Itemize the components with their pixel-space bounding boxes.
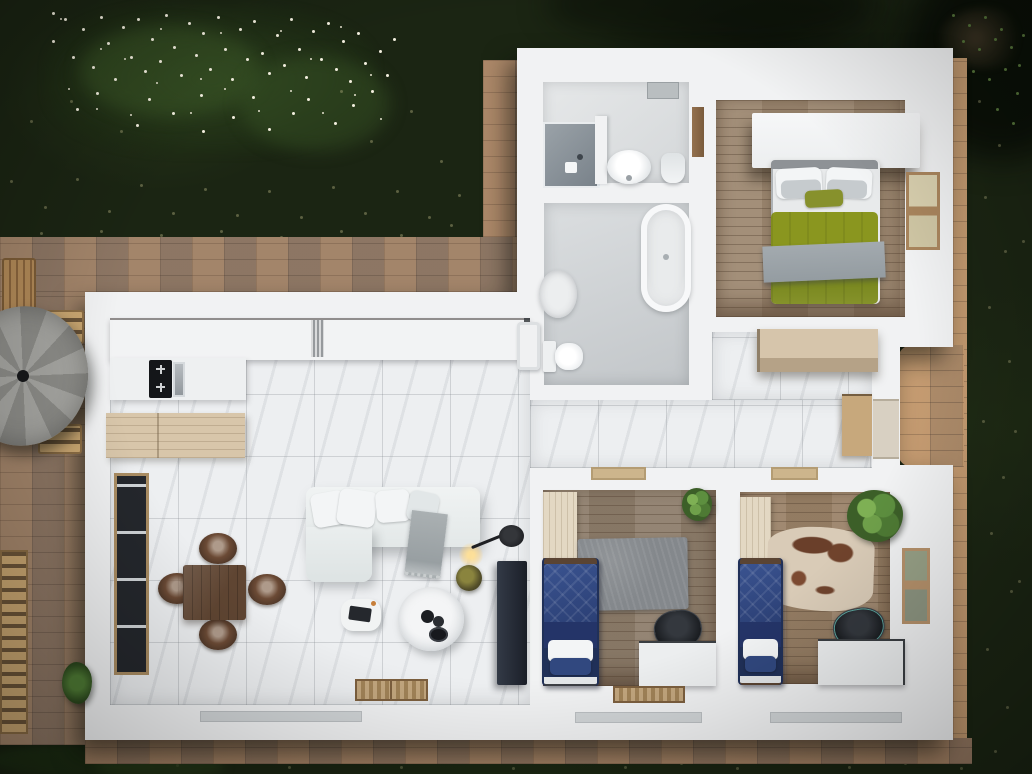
- bedroom1-desk: [639, 641, 716, 686]
- bedroom2-wall-window: [902, 548, 930, 624]
- shower-stall: [543, 122, 600, 188]
- cooktop: [149, 360, 172, 398]
- sofa-throw-blanket: [404, 510, 448, 579]
- parasol-hub: [16, 369, 30, 383]
- olive-accent-pillow: [805, 189, 844, 208]
- tablet: [348, 606, 372, 623]
- oval-washbasin: [539, 270, 577, 318]
- round-washbasin: [607, 150, 651, 184]
- bedroom1-bottom-window: [575, 712, 702, 723]
- master-bedroom-door: [692, 107, 704, 157]
- entry-door: [873, 399, 899, 459]
- potted-palm: [62, 662, 92, 704]
- dining-set: [150, 525, 290, 655]
- master-window: [906, 172, 940, 250]
- sofa-chaise: [306, 527, 372, 582]
- living-doormat-2: [390, 679, 428, 701]
- sofa-pillow-2: [336, 488, 379, 529]
- hall-cabinet: [842, 394, 872, 456]
- hall-sideboard: [757, 329, 878, 372]
- dining-chair-right: [248, 574, 286, 605]
- bedroom1-doormat: [613, 686, 685, 703]
- bed2-quilt: [740, 564, 781, 624]
- bathtub: [641, 204, 691, 312]
- floor-lamp-shade: [499, 525, 524, 547]
- gray-throw: [762, 241, 885, 282]
- bathroom-toilet: [543, 341, 584, 372]
- bedroom2-wardrobe: [740, 497, 771, 560]
- bed1-quilt: [544, 564, 597, 624]
- floor-plan-render: [0, 0, 1032, 774]
- hall-threshold-mat-1: [591, 467, 646, 480]
- candle: [371, 601, 376, 606]
- cup-2: [433, 616, 444, 627]
- tray: [429, 627, 448, 642]
- bed2-foot-frame: [740, 676, 781, 685]
- bed1-foot-frame: [544, 677, 597, 686]
- bed2-navy-pillow: [745, 656, 776, 672]
- tv-cabinet: [497, 561, 527, 685]
- dining-chair-top: [199, 533, 237, 564]
- bedroom2-bottom-window: [770, 712, 902, 723]
- shower-partition-wall: [595, 116, 607, 184]
- kitchen-sink: [173, 362, 185, 397]
- bedroom2-plant: [847, 490, 903, 542]
- bedroom1-bed: [542, 558, 599, 686]
- bedroom2-bed: [738, 558, 783, 685]
- toilet-bowl: [555, 343, 583, 370]
- island-divider: [157, 413, 159, 458]
- hallway-floor-lower: [530, 400, 872, 468]
- corner-sofa: [306, 487, 480, 582]
- radiator: [311, 320, 324, 357]
- shower-towel: [565, 162, 577, 173]
- washing-machine: [517, 322, 540, 370]
- living-bottom-window: [200, 711, 362, 722]
- bedroom2-desk: [818, 639, 905, 685]
- shower-room-toilet: [661, 153, 685, 183]
- basin-faucet: [626, 175, 632, 181]
- hall-threshold-mat-2: [771, 467, 818, 480]
- pouf-coffee-table: [398, 587, 464, 651]
- master-bed: [771, 160, 878, 304]
- skylight-vent: [647, 82, 679, 99]
- bathtub-drain: [663, 254, 669, 260]
- dining-table: [183, 565, 246, 620]
- dining-chair-bottom: [199, 619, 237, 650]
- side-table: [341, 599, 381, 631]
- bed1-navy-pillow: [550, 658, 591, 675]
- kitchen-island: [106, 413, 245, 458]
- bedroom1-plant: [682, 488, 712, 521]
- sofa-pillow-3: [375, 489, 412, 524]
- bedroom1-wardrobe: [543, 492, 577, 558]
- window-left-wall: [114, 473, 149, 675]
- shower-drain: [577, 154, 583, 160]
- sun-lounger: [0, 550, 28, 734]
- living-doormat-1: [355, 679, 392, 701]
- floor-lamp-base: [456, 565, 482, 591]
